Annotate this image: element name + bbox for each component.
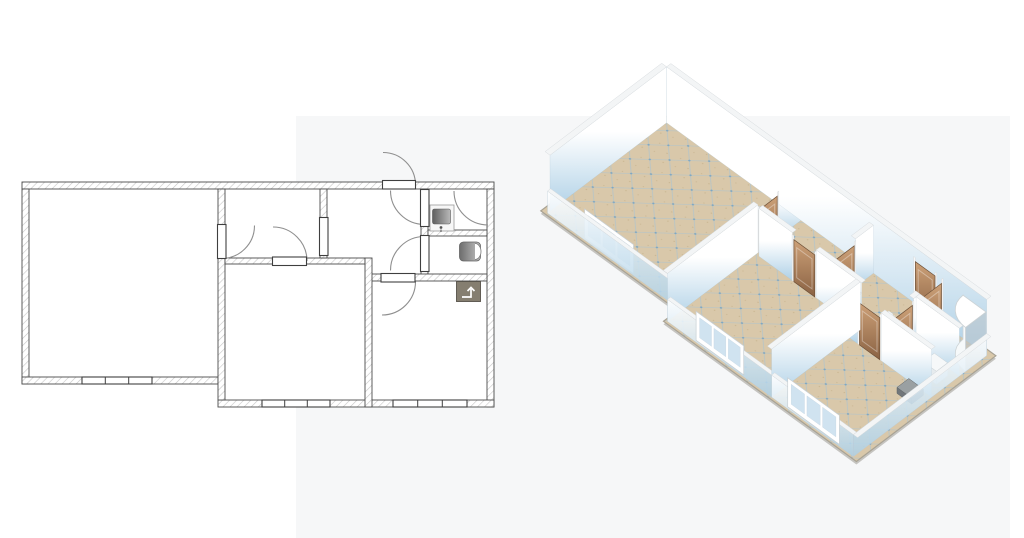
hall-cased-opening [320, 218, 329, 256]
entrance-door [383, 181, 416, 190]
wall [22, 182, 494, 189]
floorplan-viewer [0, 0, 1024, 538]
wall [22, 189, 29, 384]
floorplan-canvas [0, 0, 1024, 538]
second-bedroom-door [381, 274, 415, 283]
toilet [460, 242, 482, 261]
wall [218, 189, 225, 400]
wall [365, 258, 372, 407]
window [82, 377, 152, 384]
sink [430, 205, 454, 232]
bathroom-door [421, 190, 430, 227]
2d-floor-plan [22, 153, 494, 408]
wall [487, 189, 494, 407]
toilet-door [421, 236, 430, 272]
window [393, 400, 467, 407]
bedroom-door [273, 257, 307, 266]
appliance [457, 282, 481, 302]
window [262, 400, 330, 407]
living-room-door [218, 225, 227, 259]
